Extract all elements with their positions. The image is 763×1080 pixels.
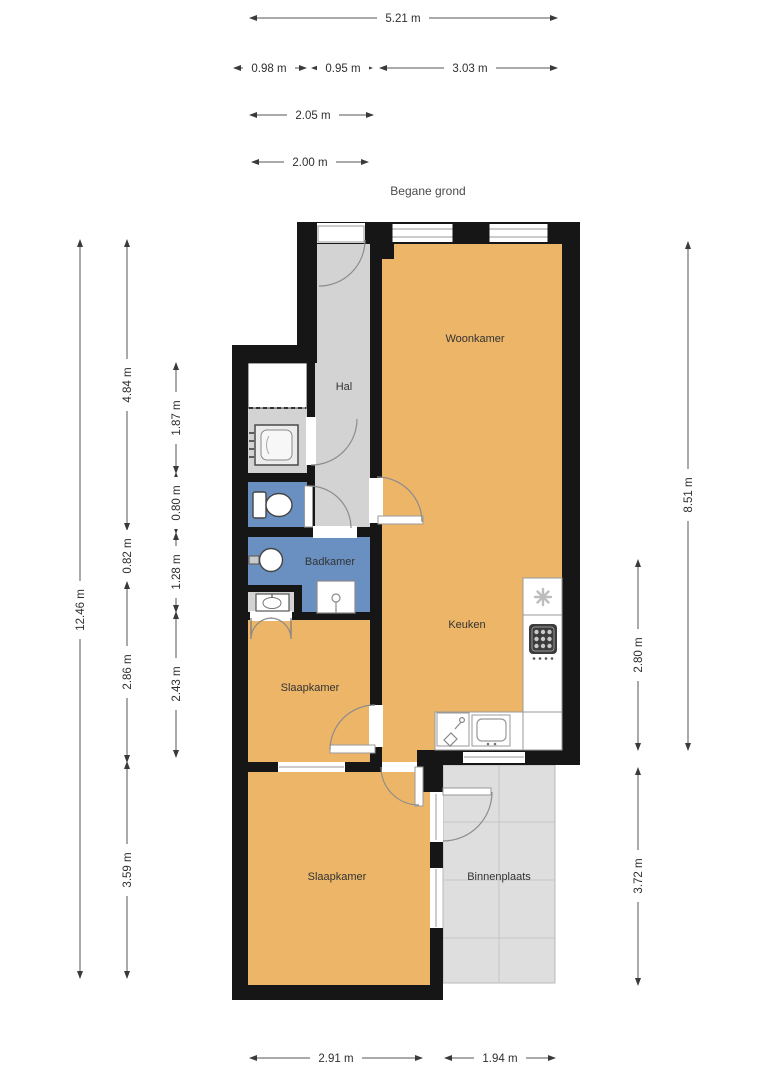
wall-bed2-right-c bbox=[430, 928, 443, 1000]
dim-width-c: 3.03 m bbox=[380, 60, 557, 76]
wall-bottom bbox=[232, 985, 443, 1000]
svg-text:2.80 m: 2.80 m bbox=[633, 637, 645, 672]
dim-inner-c: 1.28 m bbox=[168, 533, 184, 612]
dim-left-d: 3.59 m bbox=[119, 762, 135, 978]
svg-text:0.95 m: 0.95 m bbox=[325, 63, 360, 75]
dim-width-e: 2.00 m bbox=[252, 154, 368, 170]
svg-text:3.72 m: 3.72 m bbox=[633, 858, 645, 893]
svg-text:0.82 m: 0.82 m bbox=[122, 538, 134, 573]
window-bed-divider bbox=[278, 763, 345, 772]
kitchen-sink-icon bbox=[437, 713, 469, 746]
room-label-hal: Hal bbox=[336, 381, 353, 393]
svg-text:2.91 m: 2.91 m bbox=[318, 1053, 353, 1065]
dim-inner-b: 0.80 m bbox=[168, 473, 184, 533]
alcove-door-opening bbox=[250, 611, 292, 621]
dim-inner-d: 2.43 m bbox=[168, 612, 184, 757]
shower-icon bbox=[317, 581, 355, 613]
svg-text:2.43 m: 2.43 m bbox=[171, 666, 183, 701]
wall-step bbox=[382, 244, 394, 259]
dim-width-a: 0.98 m bbox=[234, 60, 306, 76]
svg-text:12.46 m: 12.46 m bbox=[75, 589, 87, 631]
wall-left bbox=[232, 345, 248, 1000]
window-kitchen bbox=[463, 752, 525, 763]
bedroom1-door-opening bbox=[369, 705, 383, 747]
dim-right-c: 3.72 m bbox=[630, 768, 646, 985]
dim-width-d: 2.05 m bbox=[250, 107, 373, 123]
wall-bed-divider-b bbox=[345, 762, 382, 772]
svg-text:1.94 m: 1.94 m bbox=[482, 1053, 517, 1065]
svg-text:4.84 m: 4.84 m bbox=[122, 367, 134, 402]
dim-bottom-b: 1.94 m bbox=[445, 1050, 555, 1066]
toilet-icon bbox=[253, 492, 292, 518]
meter-closet-door-opening bbox=[306, 417, 316, 465]
svg-text:2.00 m: 2.00 m bbox=[292, 157, 327, 169]
svg-text:1.28 m: 1.28 m bbox=[171, 554, 183, 589]
svg-text:2.05 m: 2.05 m bbox=[295, 110, 330, 122]
wall-bed2-right-b bbox=[430, 842, 443, 868]
wall-utility-toilet bbox=[248, 473, 315, 482]
svg-text:0.80 m: 0.80 m bbox=[171, 485, 183, 520]
room-label-badkamer: Badkamer bbox=[305, 556, 355, 568]
svg-text:3.03 m: 3.03 m bbox=[452, 63, 487, 75]
wall-right bbox=[562, 222, 580, 765]
room-label-slaapkamer1: Slaapkamer bbox=[281, 682, 340, 694]
bedroom2-door-opening bbox=[382, 762, 417, 772]
dim-width-b: 0.95 m bbox=[312, 60, 372, 76]
sink-drain-icon bbox=[535, 589, 551, 605]
dim-inner-a: 1.87 m bbox=[168, 363, 184, 473]
dim-bottom-a: 2.91 m bbox=[250, 1050, 422, 1066]
svg-text:5.21 m: 5.21 m bbox=[385, 13, 420, 25]
kitchen-counter-bottom bbox=[435, 712, 523, 750]
room-label-slaapkamer2: Slaapkamer bbox=[308, 871, 367, 883]
window-top-right bbox=[487, 224, 550, 242]
svg-text:0.98 m: 0.98 m bbox=[251, 63, 286, 75]
kitchen-basin-icon bbox=[472, 715, 510, 746]
dim-left-c: 2.86 m bbox=[119, 582, 135, 762]
wall-bed-divider-a bbox=[232, 762, 278, 772]
wall-left-upper bbox=[297, 222, 317, 363]
floorplan-page: Begane grond Woonkamer Hal Badkamer Keuk… bbox=[0, 0, 763, 1080]
dim-right-b: 2.80 m bbox=[630, 560, 646, 750]
svg-text:8.51 m: 8.51 m bbox=[683, 477, 695, 512]
wall-alcove-top bbox=[248, 585, 302, 592]
dim-left-b: 0.82 m bbox=[119, 530, 135, 582]
svg-text:2.86 m: 2.86 m bbox=[122, 654, 134, 689]
room-label-woonkamer: Woonkamer bbox=[445, 333, 504, 345]
svg-text:3.59 m: 3.59 m bbox=[122, 852, 134, 887]
dim-height-total: 12.46 m bbox=[72, 240, 88, 978]
window-bed2 bbox=[431, 868, 441, 928]
meter-closet-floor bbox=[248, 363, 307, 408]
plan-title: Begane grond bbox=[390, 184, 465, 198]
room-label-keuken: Keuken bbox=[448, 619, 485, 631]
dim-width-total: 5.21 m bbox=[250, 10, 557, 26]
wall-bed2-right-a bbox=[430, 750, 443, 792]
wall-hall-living-a bbox=[370, 222, 382, 478]
hand-basin-icon bbox=[256, 594, 289, 611]
room-label-binnenplaats: Binnenplaats bbox=[467, 871, 531, 883]
window-top-left bbox=[390, 224, 455, 242]
washing-machine-icon bbox=[249, 425, 298, 465]
svg-text:1.87 m: 1.87 m bbox=[171, 400, 183, 435]
kitchen-counter-right bbox=[523, 578, 562, 750]
dim-left-a: 4.84 m bbox=[119, 240, 135, 530]
dim-right-a: 8.51 m bbox=[680, 242, 696, 750]
floorplan-drawing: Begane grond Woonkamer Hal Badkamer Keuk… bbox=[0, 0, 763, 1080]
courtyard-door-opening bbox=[430, 792, 443, 842]
